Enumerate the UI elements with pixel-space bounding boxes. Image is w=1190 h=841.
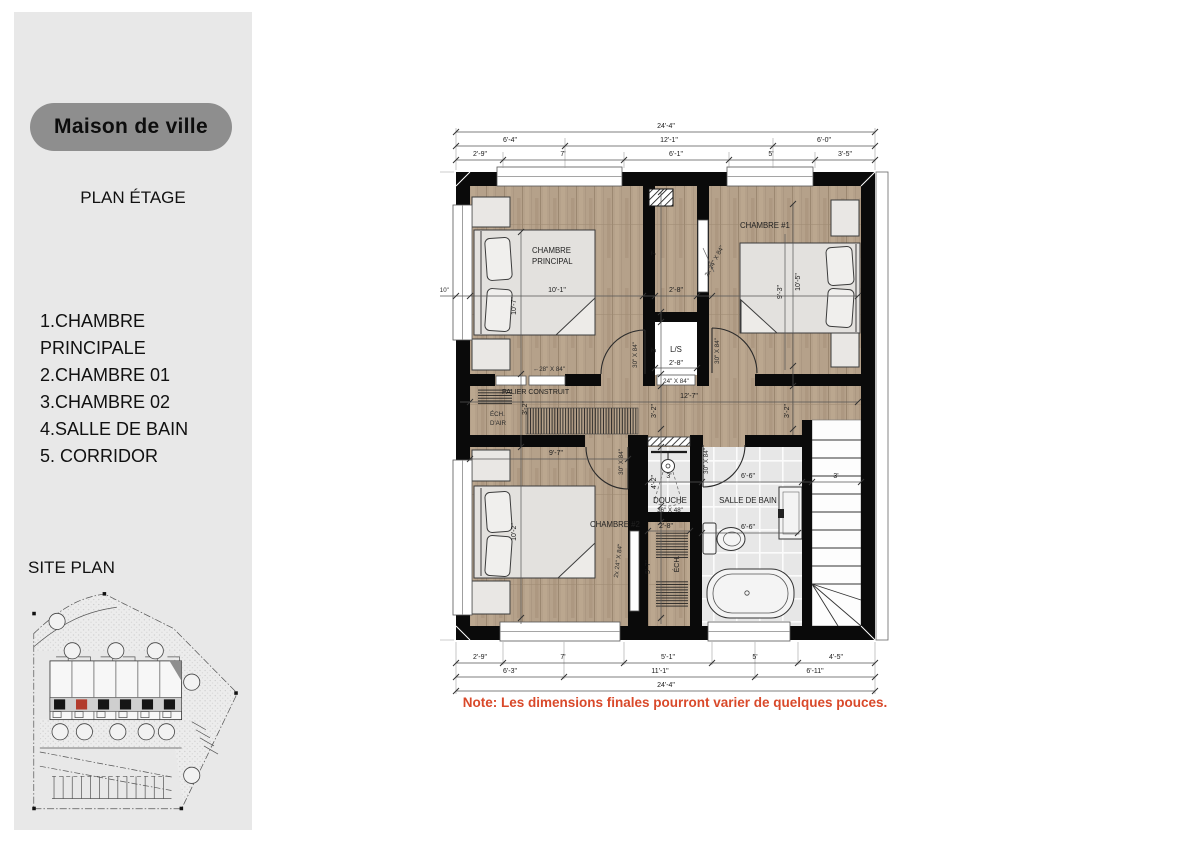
dim-bottom-inner-1: 2'-9" <box>473 654 487 661</box>
dim-bottom-mid-2: 11'-1" <box>651 668 669 675</box>
legend-item-3: 3.CHAMBRE 02 <box>40 389 252 416</box>
door-label-master-swing: 30" X 84" <box>632 342 639 368</box>
dim-chambre1-1: 9'-3" <box>777 285 784 299</box>
door-label-chambre1: 30" X 84" <box>714 338 721 364</box>
dim-closet-h: 7' <box>651 250 658 255</box>
dim-top-inner-5: 3'-5" <box>838 151 852 158</box>
dim-left-offset: 0'-10" <box>440 287 449 294</box>
plan-type-label: PLAN ÉTAGE <box>14 188 252 208</box>
door-label-master-pocket: ←28" X 84" <box>533 366 565 373</box>
dim-bottom-mid-1: 6'-3" <box>503 668 517 675</box>
page: Maison de ville PLAN ÉTAGE 1.CHAMBRE PRI… <box>0 0 1190 841</box>
nightstand <box>472 450 510 481</box>
door-label-ls: 24" X 84" <box>663 378 689 385</box>
dim-shower-h: 4'-2" <box>651 475 658 489</box>
dim-bottom-inner-3: 5'-1" <box>661 654 675 661</box>
dim-chambre2-w: 9'-7" <box>549 450 563 457</box>
dim-top-total: 24'-4" <box>657 123 675 130</box>
dim-ls-h: 3' <box>651 347 658 352</box>
door-label-bathroom: 30" X 84" <box>703 448 710 474</box>
project-title-badge: Maison de ville <box>30 103 232 151</box>
dim-corridor-left: 3'-2" <box>651 404 658 418</box>
nightstand <box>831 200 859 236</box>
dim-shaft-h: 5'-7" <box>645 560 652 574</box>
pillow <box>826 288 855 328</box>
dim-top-mid-1: 6'-4" <box>503 137 517 144</box>
dim-corridor-right: 3'-2" <box>784 404 791 418</box>
label-ech-shaft: ÉCH. <box>672 556 681 573</box>
dimensions-note: Note: Les dimensions finales pourront va… <box>440 695 910 710</box>
pillow <box>485 288 513 332</box>
room-label-chambre2: CHAMBRE #2 <box>590 520 640 529</box>
dim-shaft-w: 2'-8" <box>659 523 673 530</box>
label-ech-air-1: ÉCH. <box>490 411 505 418</box>
bathtub <box>707 569 794 618</box>
bifold-door-panel <box>630 531 639 611</box>
dim-ls-w: 2'-8" <box>669 360 683 367</box>
dim-top-inner-1: 2'-9" <box>473 151 487 158</box>
pillow <box>485 491 513 533</box>
project-title: Maison de ville <box>54 115 208 139</box>
legend-item-4: 4.SALLE DE BAIN <box>40 416 252 443</box>
site-highlighted-unit <box>76 699 87 709</box>
label-palier: PALIER CONSTRUIT <box>502 389 570 396</box>
pocket-door-panel <box>529 376 565 385</box>
nightstand <box>472 581 510 614</box>
dim-top-inner-4: 5' <box>768 151 773 158</box>
room-label-chambre1: CHAMBRE #1 <box>740 221 790 230</box>
legend-item-1: 1.CHAMBRE PRINCIPALE <box>40 308 252 362</box>
room-label-linen-closet: L/S <box>670 345 682 354</box>
dim-master-w: 10'-1" <box>548 287 566 294</box>
dim-bottom-inner-4: 5' <box>752 654 757 661</box>
dim-master-h: 10'-7" <box>511 297 518 315</box>
dim-corridor-w: 12'-7" <box>680 393 698 400</box>
site-plan-drawing <box>20 588 246 831</box>
pillow <box>485 535 513 577</box>
pillow <box>485 237 513 281</box>
legend-item-5: 5. CORRIDOR <box>40 443 252 470</box>
dim-top-inner-2: 7' <box>560 151 565 158</box>
nightstand <box>472 339 510 370</box>
nightstand <box>472 197 510 227</box>
dim-top-inner-3: 6'-1" <box>669 151 683 158</box>
door-label-chambre2: 30" X 84" <box>618 449 625 475</box>
legend-item-2: 2.CHAMBRE 01 <box>40 362 252 389</box>
room-label-master-1: CHAMBRE <box>532 246 571 255</box>
shower-glass-partition <box>648 437 690 446</box>
dim-top-mid-2: 12'-1" <box>660 137 678 144</box>
dim-bottom-total: 24'-4" <box>657 682 675 689</box>
dim-palier: 3'-2" <box>522 401 529 415</box>
dim-bottom-inner-2: 7' <box>560 654 565 661</box>
room-label-master-2: PRINCIPAL <box>532 257 573 266</box>
pillow <box>826 246 855 286</box>
site-plan-title: SITE PLAN <box>28 558 115 578</box>
dim-shower-w: 3' <box>666 473 671 480</box>
room-label-bathroom: SALLE DE BAIN <box>719 496 777 505</box>
dim-closet-w: 2'-8" <box>669 287 683 294</box>
pocket-door-panel <box>496 376 526 385</box>
dim-top-mid-3: 6'-0" <box>817 137 831 144</box>
sidebar: Maison de ville PLAN ÉTAGE 1.CHAMBRE PRI… <box>14 12 252 830</box>
dim-bottom-mid-3: 6'-11" <box>806 668 824 675</box>
dim-chambre2-h: 10'-2" <box>511 523 518 541</box>
dim-chambre1-2: 10'-5" <box>795 273 802 291</box>
dim-bath-w2: 6'-6" <box>741 524 755 531</box>
dim-stair-w: 3' <box>833 473 838 480</box>
dim-bottom-inner-5: 4'-5" <box>829 654 843 661</box>
dim-bath-w1: 6'-6" <box>741 473 755 480</box>
exterior-finish-line <box>876 172 888 640</box>
room-legend: 1.CHAMBRE PRINCIPALE 2.CHAMBRE 01 3.CHAM… <box>40 308 252 470</box>
room-label-shower-2: 36" X 48" <box>657 507 683 514</box>
nightstand <box>831 331 859 367</box>
vanity-sink <box>778 487 802 539</box>
room-label-shower-1: DOUCHE <box>653 496 687 505</box>
label-ech-air-2: D'AIR <box>490 420 506 427</box>
stairwell-opening-hatch <box>526 408 638 434</box>
floor-plan-drawing: 24'-4" 6'-4" 12'-1" 6'-0" 2'-9" 7' 6'-1"… <box>440 110 910 720</box>
